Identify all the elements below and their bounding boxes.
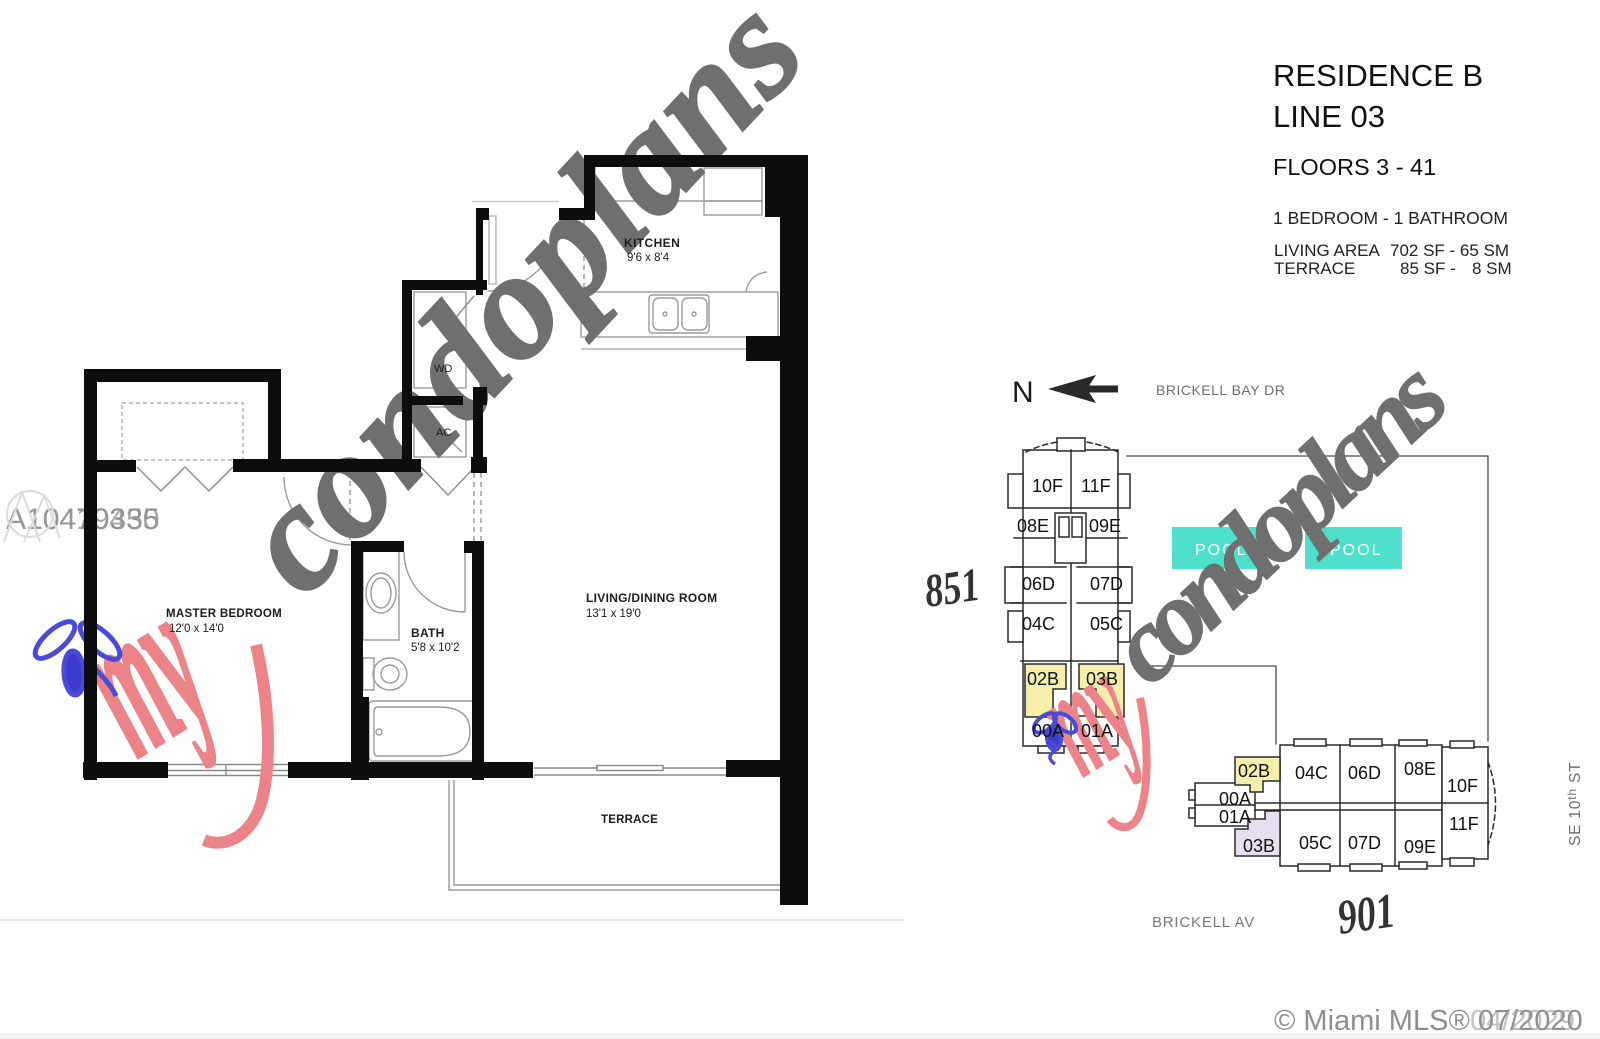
svg-text:5'8 x 10'2: 5'8 x 10'2 [411,642,460,654]
svg-text:11F: 11F [1449,814,1479,834]
svg-text:03B: 03B [1243,836,1275,856]
svg-text:TERRACE: TERRACE [601,814,658,826]
svg-text:LIVING AREA: LIVING AREA [1274,241,1380,260]
svg-text:RESIDENCE B: RESIDENCE B [1273,58,1483,93]
svg-text:04C: 04C [1022,614,1055,634]
svg-text:10F: 10F [1032,476,1063,496]
svg-text:LINE 03: LINE 03 [1273,99,1385,134]
svg-text:MASTER BEDROOM: MASTER BEDROOM [166,608,282,620]
svg-text:07D: 07D [1348,833,1381,853]
svg-text:LIVING/DINING ROOM: LIVING/DINING ROOM [586,591,717,605]
svg-text:02B: 02B [1238,761,1270,781]
svg-text:08E: 08E [1017,516,1049,536]
svg-text:09E: 09E [1404,837,1436,857]
svg-text:SE 10th ST: SE 10th ST [1565,762,1584,846]
svg-text:00A: 00A [1032,721,1064,741]
svg-text:WD: WD [434,363,452,375]
svg-text:03B: 03B [1086,669,1118,689]
svg-text:BRICKELL BAY DR: BRICKELL BAY DR [1156,382,1285,398]
svg-text:BRICKELL AV: BRICKELL AV [1152,914,1255,931]
svg-text:FLOORS 3 - 41: FLOORS 3 - 41 [1273,154,1436,180]
svg-text:901: 901 [1334,883,1398,945]
svg-text:01A: 01A [1219,807,1251,827]
svg-text:13'1 x 19'0: 13'1 x 19'0 [586,608,641,620]
svg-text:85 SF -: 85 SF - [1400,259,1456,278]
svg-text:00A: 00A [1219,789,1251,809]
svg-text:05C: 05C [1090,614,1123,634]
svg-text:06D: 06D [1348,763,1381,783]
svg-text:01A: 01A [1081,721,1113,741]
svg-text:TERRACE: TERRACE [1274,259,1355,278]
svg-text:12'0 x 14'0: 12'0 x 14'0 [169,623,224,635]
svg-text:N: N [1012,376,1034,409]
svg-text:POOL: POOL [1330,542,1382,559]
svg-text:04/2029: 04/2029 [1470,1005,1575,1037]
svg-text:06D: 06D [1022,574,1055,594]
svg-text:09E: 09E [1089,516,1121,536]
svg-text:KITCHEN: KITCHEN [624,236,680,250]
svg-text:1 BEDROOM - 1 BATHROOM: 1 BEDROOM - 1 BATHROOM [1273,208,1508,228]
svg-text:04C: 04C [1295,763,1328,783]
svg-text:9'6 x 8'4: 9'6 x 8'4 [627,252,670,264]
svg-text:07D: 07D [1090,574,1123,594]
svg-text:BATH: BATH [411,626,445,640]
svg-text:11F: 11F [1081,476,1111,496]
svg-text:02B: 02B [1027,669,1059,689]
svg-text:05C: 05C [1299,833,1332,853]
svg-text:851: 851 [921,558,983,618]
svg-text:10F: 10F [1447,776,1478,796]
svg-text:AC: AC [436,427,451,439]
svg-text:08E: 08E [1404,759,1436,779]
svg-text:8 SM: 8 SM [1472,259,1512,278]
svg-text:702 SF - 65 SM: 702 SF - 65 SM [1390,241,1509,260]
